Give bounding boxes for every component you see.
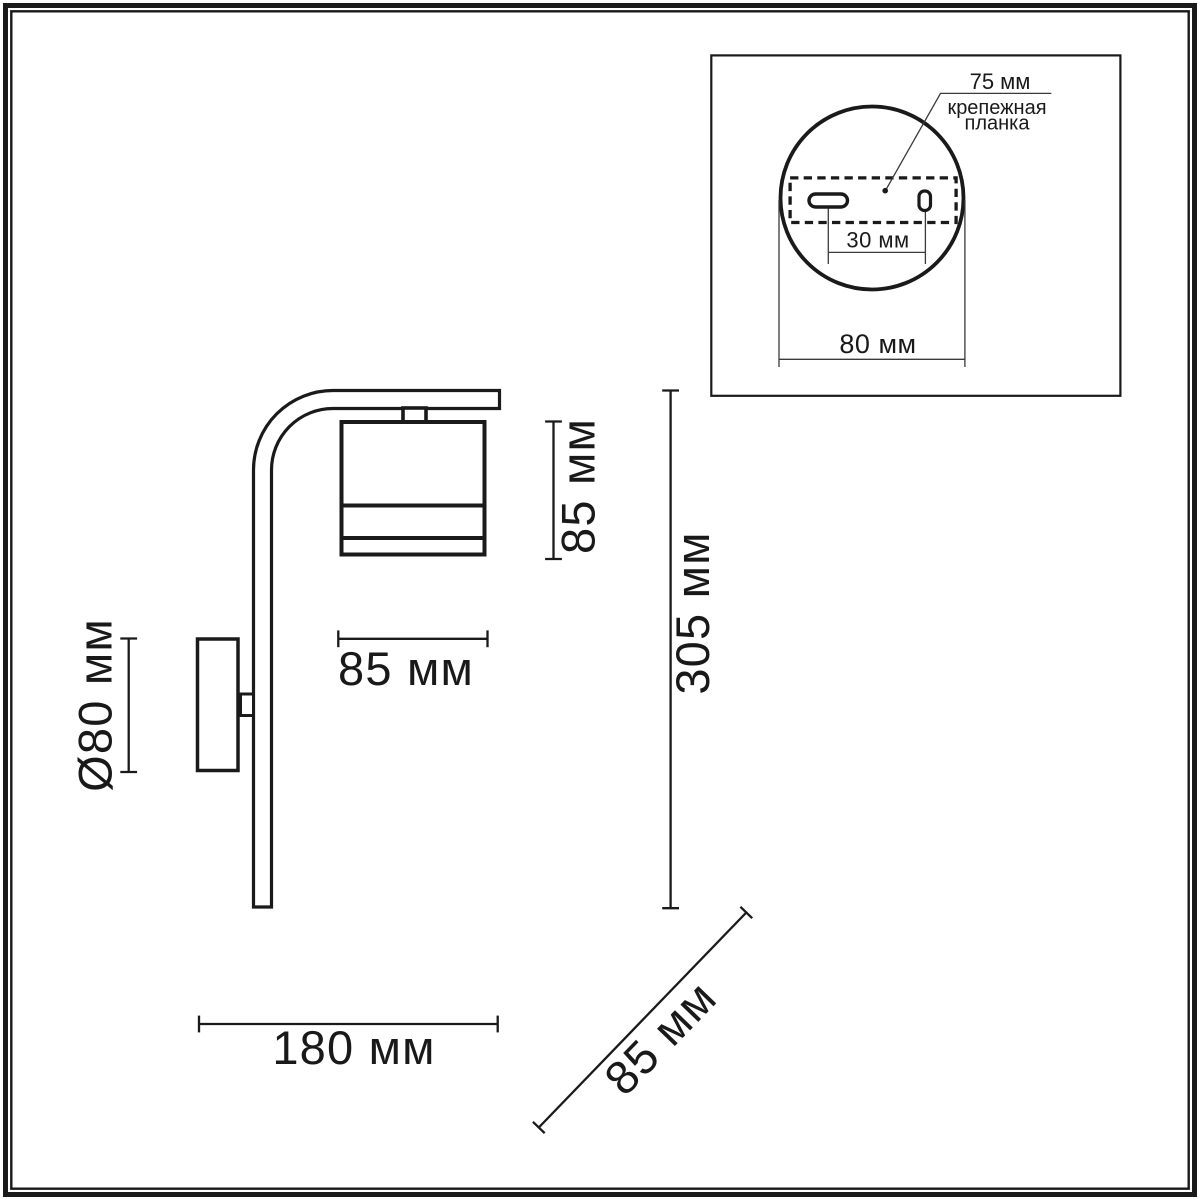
svg-text:планка: планка (965, 113, 1031, 135)
svg-text:Ø80 мм: Ø80 мм (69, 618, 122, 792)
svg-text:85 мм: 85 мм (552, 418, 605, 554)
svg-text:75 мм: 75 мм (970, 69, 1031, 94)
svg-text:80 мм: 80 мм (839, 329, 916, 359)
svg-text:30 мм: 30 мм (846, 228, 909, 253)
svg-text:180 мм: 180 мм (272, 1021, 435, 1074)
svg-text:85 мм: 85 мм (338, 642, 474, 695)
svg-text:305 мм: 305 мм (666, 531, 719, 694)
